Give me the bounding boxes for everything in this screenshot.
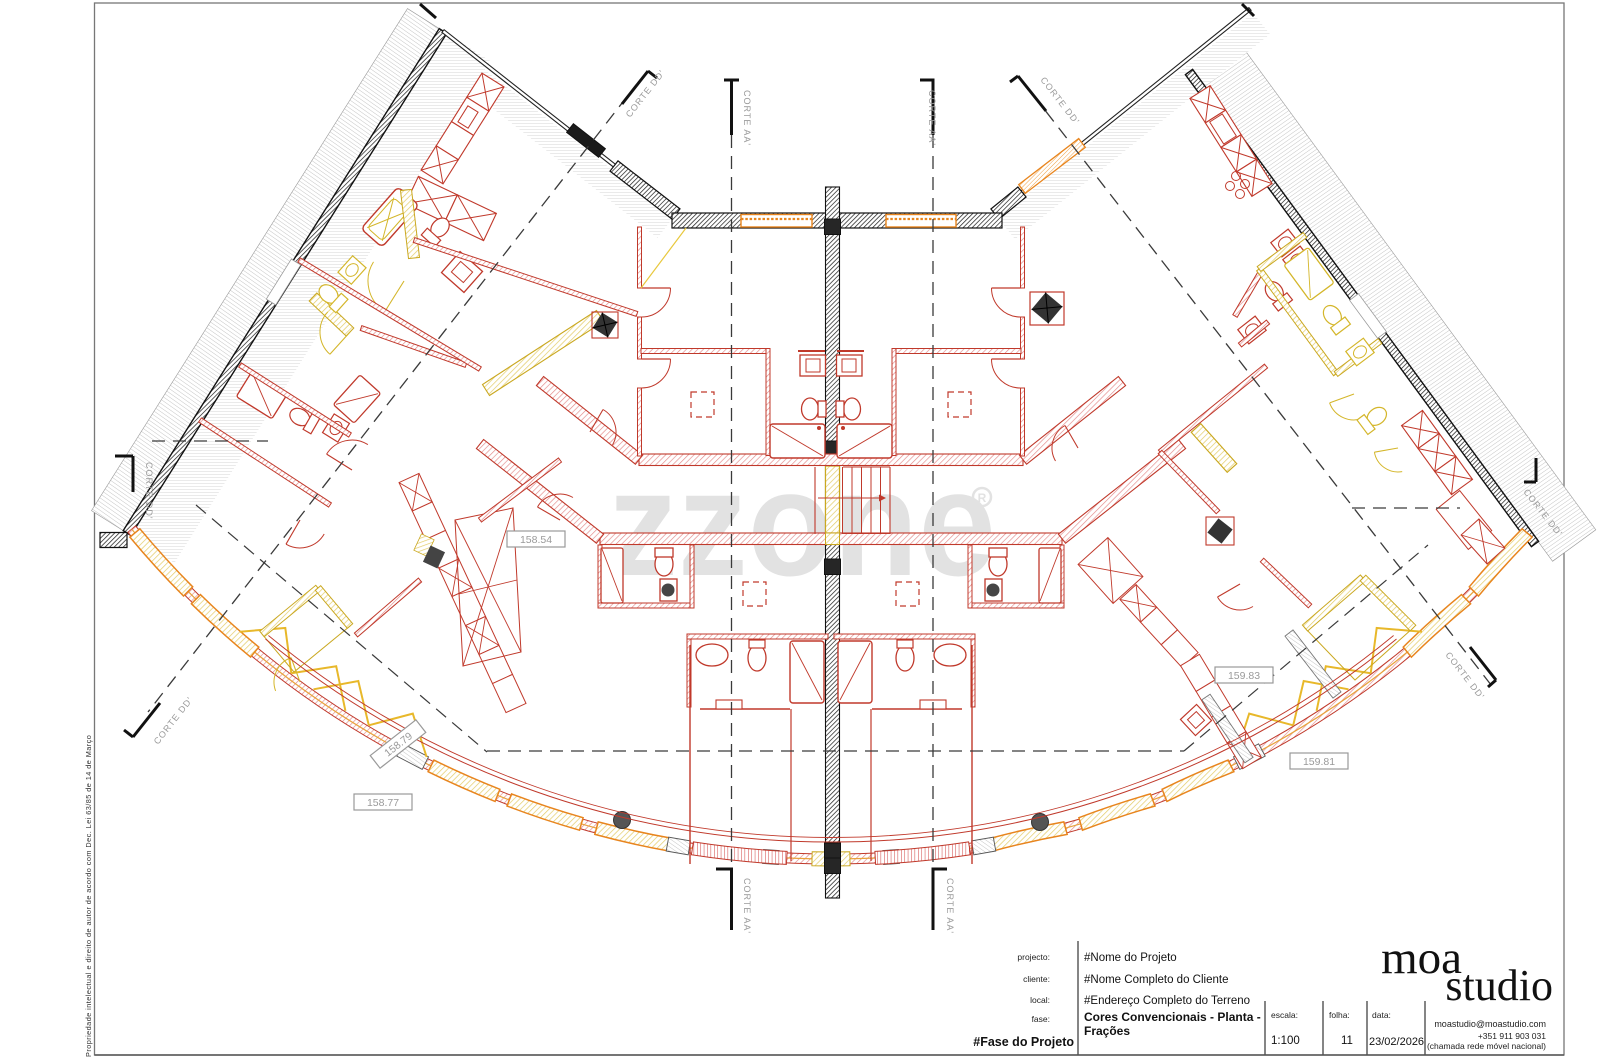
svg-text:(chamada rede móvel nacional): (chamada rede móvel nacional) (1427, 1041, 1546, 1051)
svg-text:#Fase do Projeto: #Fase do Projeto (973, 1035, 1074, 1049)
svg-text:local:: local: (1030, 995, 1050, 1005)
svg-text:#Nome do Projeto: #Nome do Projeto (1084, 952, 1177, 964)
svg-text:Frações: Frações (1084, 1024, 1130, 1038)
svg-text:projecto:: projecto: (1017, 952, 1050, 962)
svg-text:studio: studio (1445, 961, 1553, 1010)
svg-text:CORTE AA': CORTE AA' (742, 878, 752, 934)
svg-text:CORTE AA': CORTE AA' (945, 878, 955, 934)
svg-text:158.77: 158.77 (367, 797, 399, 809)
svg-text:R: R (978, 491, 987, 505)
svg-text:escala:: escala: (1271, 1010, 1298, 1020)
svg-text:fase:: fase: (1032, 1014, 1050, 1024)
svg-text:Propriedade intelectual e d: Propriedade intelectual e direito de aut… (84, 735, 93, 1057)
svg-text:cliente:: cliente: (1023, 974, 1050, 984)
svg-text:data:: data: (1372, 1010, 1391, 1020)
svg-text:11: 11 (1341, 1035, 1353, 1047)
svg-text:+351 911 903 031: +351 911 903 031 (1478, 1031, 1546, 1041)
svg-text:CORTE AA': CORTE AA' (742, 90, 752, 146)
svg-text:CORTE AA': CORTE AA' (927, 90, 937, 146)
svg-text:#Endereço Completo do Terreno: #Endereço Completo do Terreno (1084, 995, 1250, 1007)
svg-text:Cores Convencionais - Planta -: Cores Convencionais - Planta - (1084, 1010, 1261, 1024)
svg-text:159.83: 159.83 (1228, 670, 1260, 682)
svg-text:158.54: 158.54 (520, 534, 552, 546)
svg-text:1:100: 1:100 (1271, 1035, 1300, 1047)
svg-text:moastudio@moastudio.com: moastudio@moastudio.com (1434, 1019, 1546, 1029)
svg-text:folha:: folha: (1329, 1010, 1350, 1020)
svg-text:23/02/2026: 23/02/2026 (1369, 1036, 1424, 1048)
svg-text:CORTE DD': CORTE DD' (144, 462, 154, 520)
svg-text:159.81: 159.81 (1303, 756, 1335, 768)
svg-text:#Nome Completo do Cliente: #Nome Completo do Cliente (1084, 974, 1228, 986)
